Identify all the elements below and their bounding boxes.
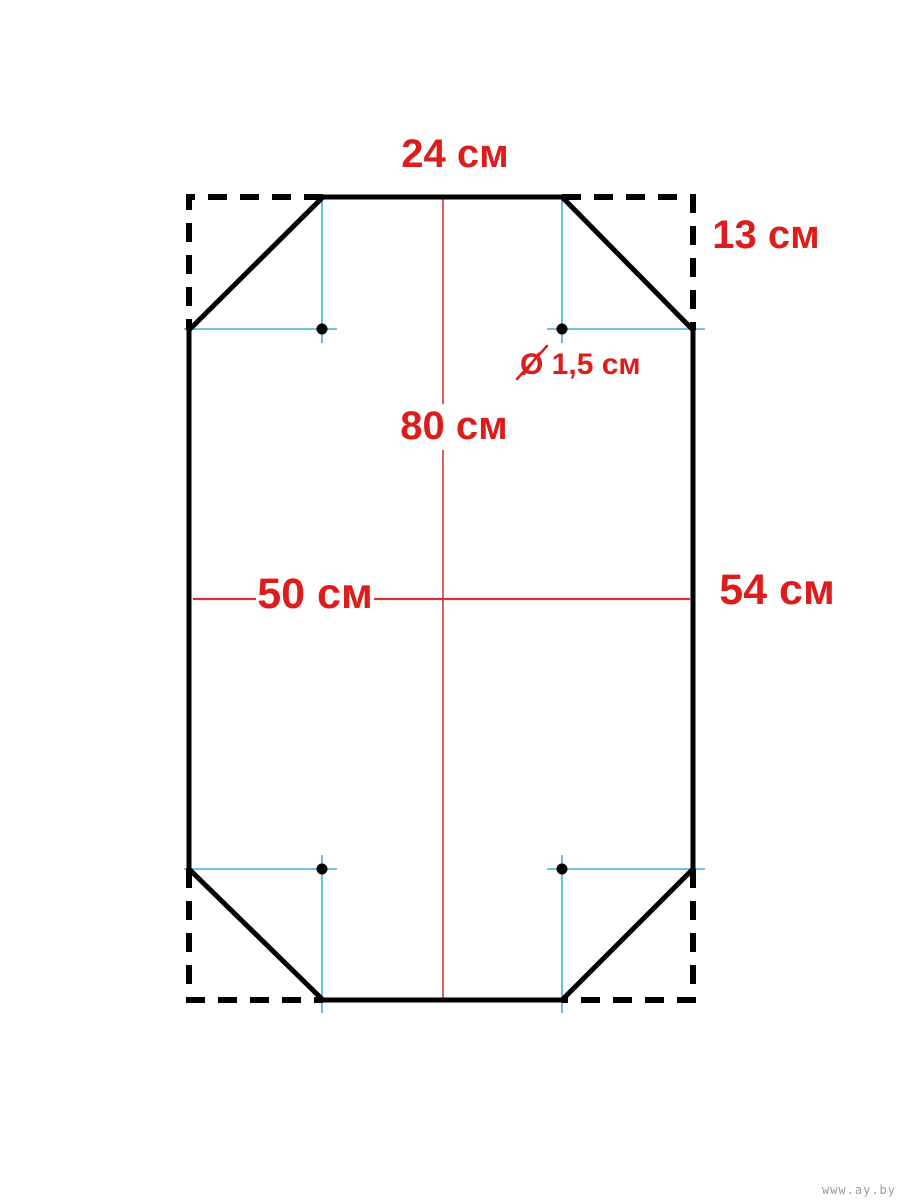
pattern-diagram: 24 см 13 см 80 см Ø 1,5 см 50 см 54 см w…	[0, 0, 900, 1200]
hole-dot-top-right	[557, 324, 568, 335]
label-side-height: 54 см	[719, 566, 835, 614]
dimension-labels: 24 см 13 см 80 см Ø 1,5 см 50 см 54 см	[257, 132, 835, 618]
label-inner-width: 50 см	[257, 570, 373, 618]
label-corner-cut: 13 см	[712, 213, 819, 257]
watermark-text: www.ay.by	[822, 1183, 896, 1197]
label-center-height: 80 см	[400, 404, 507, 448]
pattern-diagram-svg: 24 см 13 см 80 см Ø 1,5 см 50 см 54 см w…	[0, 0, 900, 1200]
hole-dot-top-left	[317, 324, 328, 335]
hole-dot-bottom-right	[557, 864, 568, 875]
label-top-width: 24 см	[401, 132, 508, 176]
label-hole-diameter: Ø 1,5 см	[520, 348, 641, 381]
hole-dot-bottom-left	[317, 864, 328, 875]
